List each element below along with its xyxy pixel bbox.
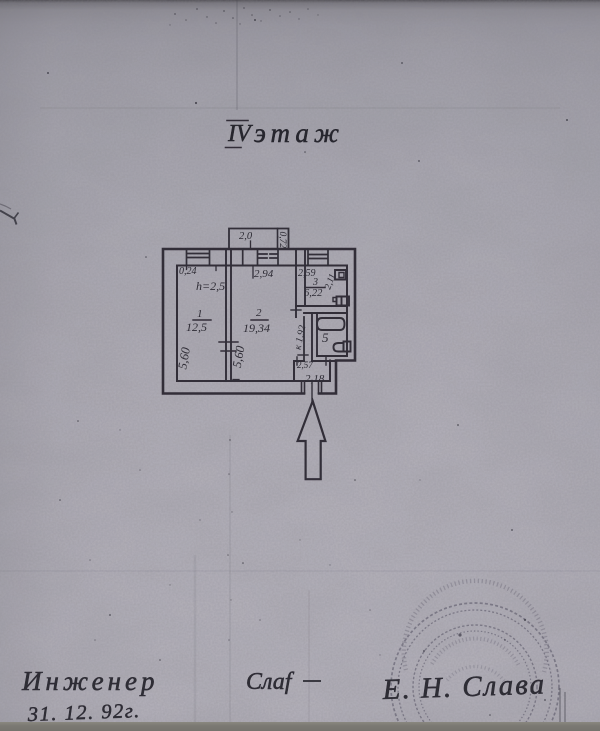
svg-text:1: 1	[197, 308, 203, 320]
svg-text:2,94: 2,94	[254, 268, 274, 280]
svg-text:IV: IV	[227, 121, 253, 147]
svg-text:2,57: 2,57	[297, 360, 313, 370]
svg-text:19,34: 19,34	[243, 321, 270, 335]
svg-text:Инженер: Инженер	[21, 666, 159, 696]
svg-text:этаж: этаж	[254, 118, 344, 148]
svg-text:Е. Н. Слава: Е. Н. Слава	[381, 668, 546, 706]
svg-text:6,22: 6,22	[304, 288, 323, 299]
svg-text:0,72: 0,72	[277, 232, 287, 249]
svg-text:2,18: 2,18	[305, 373, 325, 385]
svg-text:Слаf: Слаf	[246, 669, 295, 695]
svg-text:3: 3	[312, 277, 318, 288]
svg-text:5: 5	[322, 330, 329, 345]
svg-text:h=2,5: h=2,5	[196, 279, 225, 293]
svg-text:12,5: 12,5	[186, 320, 207, 334]
svg-text:0,24: 0,24	[179, 266, 197, 277]
svg-text:2: 2	[256, 307, 262, 319]
